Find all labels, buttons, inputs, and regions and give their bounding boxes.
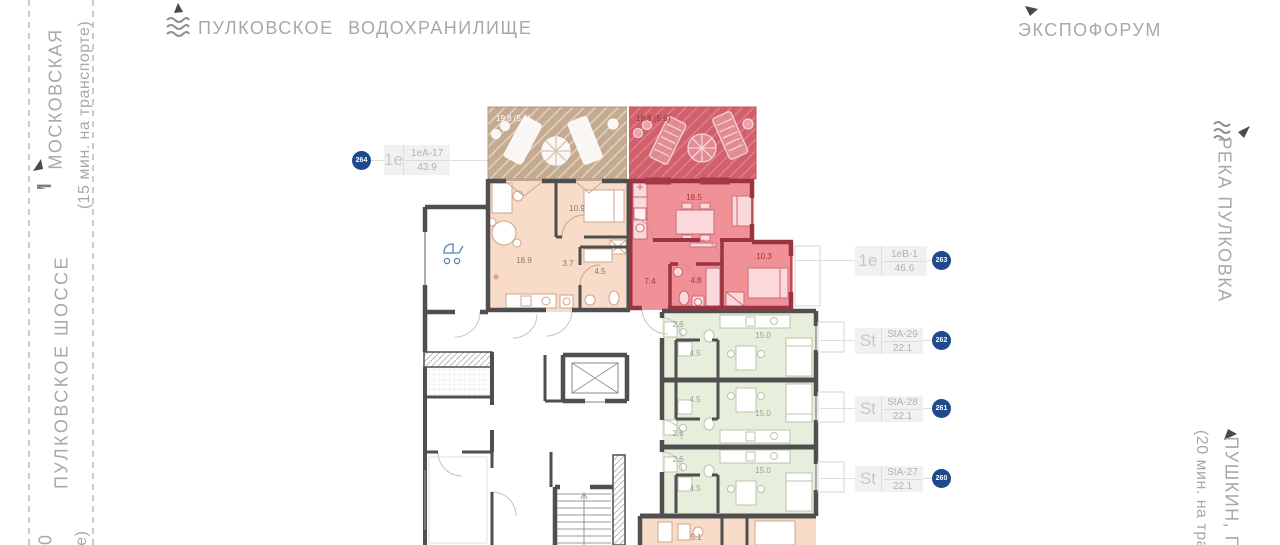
shaft-hatched <box>424 352 492 367</box>
svg-text:4.5: 4.5 <box>689 484 701 493</box>
poi-metro-moskovskaya: МОСКОВСКАЯ <box>46 28 67 169</box>
svg-text:15.0: 15.0 <box>755 409 771 418</box>
stroller-icon <box>444 244 463 264</box>
unit-code: StA-28 <box>883 397 922 410</box>
poi-expoforum: ЭКСПОФОРУМ <box>1018 20 1162 41</box>
unit-code: 1еВ-1 <box>883 249 926 262</box>
expoforum-arrow-icon <box>1024 4 1040 18</box>
poi-reservoir: ПУЛКОВСКОЕ ВОДОХРАНИЛИЩЕ <box>198 18 532 39</box>
connector <box>923 478 932 479</box>
unit-badge-264[interactable]: 264 <box>352 151 371 170</box>
svg-text:18.9: 18.9 <box>516 256 532 265</box>
svg-text:18.6 (5.6): 18.6 (5.6) <box>636 114 671 123</box>
svg-text:М: М <box>34 183 56 189</box>
unit-area: 22.1 <box>893 410 912 422</box>
connector <box>923 340 932 341</box>
poi-fragment-te: те) <box>73 531 91 545</box>
svg-text:10.9: 10.9 <box>569 204 585 213</box>
poi-metro-time: (15 мин. на транспорте) <box>76 21 94 209</box>
tiled-room <box>426 368 490 397</box>
svg-text:7.4: 7.4 <box>644 277 656 286</box>
unit-code: StA-29 <box>883 329 922 342</box>
unit-type: 1е <box>384 145 404 175</box>
terrace-264: 19.8 (5.9) <box>488 107 627 179</box>
stairs <box>557 493 611 545</box>
poi-fragment-30: 30 <box>36 533 57 545</box>
unit-badge-260[interactable]: 260 <box>932 469 951 488</box>
unit-label-261[interactable]: St StA-28 22.1 <box>855 396 923 422</box>
svg-text:15.0: 15.0 <box>755 466 771 475</box>
unit-label-260[interactable]: St StA-27 22.1 <box>855 466 923 492</box>
svg-text:2.6: 2.6 <box>672 320 684 329</box>
poi-pushkin-time: (20 мин. на тра <box>1192 430 1210 545</box>
unit-code: StA-27 <box>883 467 922 480</box>
floorplan-page: { "pois": { "reservoir": "ПУЛКОВСКОЕ ВОД… <box>0 0 1280 545</box>
svg-text:15.0: 15.0 <box>755 331 771 340</box>
unit-label-262[interactable]: St StA-29 22.1 <box>855 328 923 354</box>
svg-text:4.5: 4.5 <box>689 349 701 358</box>
poi-river-pulkovka: РЕКА ПУЛКОВКА <box>1214 137 1235 302</box>
svg-text:4.5: 4.5 <box>689 395 701 404</box>
svg-text:19.8 (5.9): 19.8 (5.9) <box>496 114 531 123</box>
connector <box>371 160 384 161</box>
svg-text:18.5: 18.5 <box>686 193 702 202</box>
svg-text:3.7: 3.7 <box>562 259 574 268</box>
reservoir-waves-icon <box>164 2 192 40</box>
unit-label-263[interactable]: 1е 1еВ-1 46.6 <box>855 246 927 276</box>
unit-badge-262[interactable]: 262 <box>932 331 951 350</box>
floor-plan: 19.8 (5.9) 18.6 (5.6) <box>415 100 865 545</box>
poi-pushkin: ПУШКИН, ПА <box>1221 436 1242 545</box>
svg-text:4.5: 4.5 <box>594 267 606 276</box>
unit-area: 46.6 <box>895 262 914 274</box>
svg-text:2.6: 2.6 <box>672 455 684 464</box>
road-dash-left <box>28 0 30 545</box>
svg-text:10.3: 10.3 <box>756 252 772 261</box>
stair-column <box>613 455 625 545</box>
unit-badge-261[interactable]: 261 <box>932 399 951 418</box>
poi-pulkovskoe-shosse: ПУЛКОВСКОЕ ШОССЕ <box>52 255 73 489</box>
unit-area: 22.1 <box>893 480 912 492</box>
unit-badge-263[interactable]: 263 <box>932 251 951 270</box>
elevator <box>572 363 618 402</box>
svg-text:2.6: 2.6 <box>672 429 684 438</box>
terrace-263: 18.6 (5.6) <box>629 107 756 179</box>
connector <box>923 408 932 409</box>
svg-text:5.1: 5.1 <box>690 533 702 542</box>
unit-area: 22.1 <box>893 342 912 354</box>
svg-text:4.8: 4.8 <box>690 276 702 285</box>
